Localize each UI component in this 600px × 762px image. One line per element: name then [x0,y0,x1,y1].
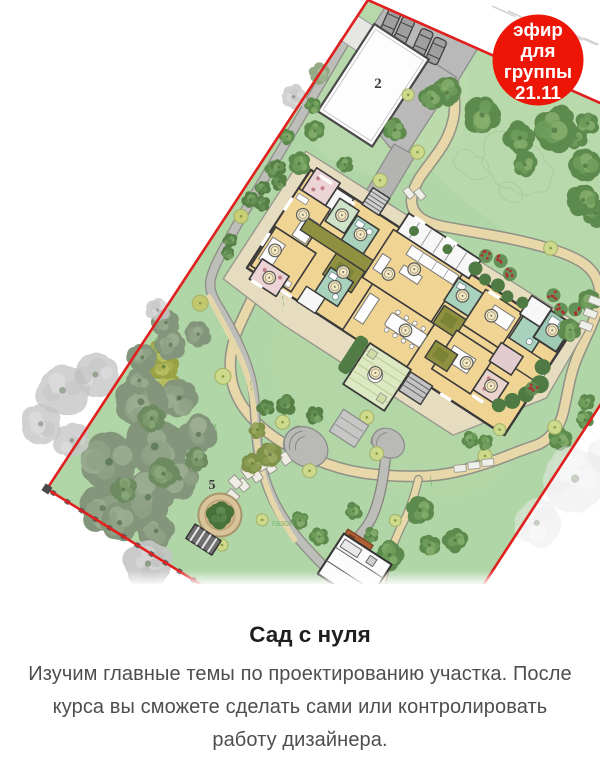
svg-text:газон: газон [272,518,294,528]
svg-text:2: 2 [374,76,382,92]
svg-text:эфир: эфир [513,19,563,40]
svg-text:группы: группы [504,61,572,82]
svg-text:21.11: 21.11 [515,82,561,103]
svg-text:для: для [521,40,556,61]
svg-text:5: 5 [209,478,216,493]
